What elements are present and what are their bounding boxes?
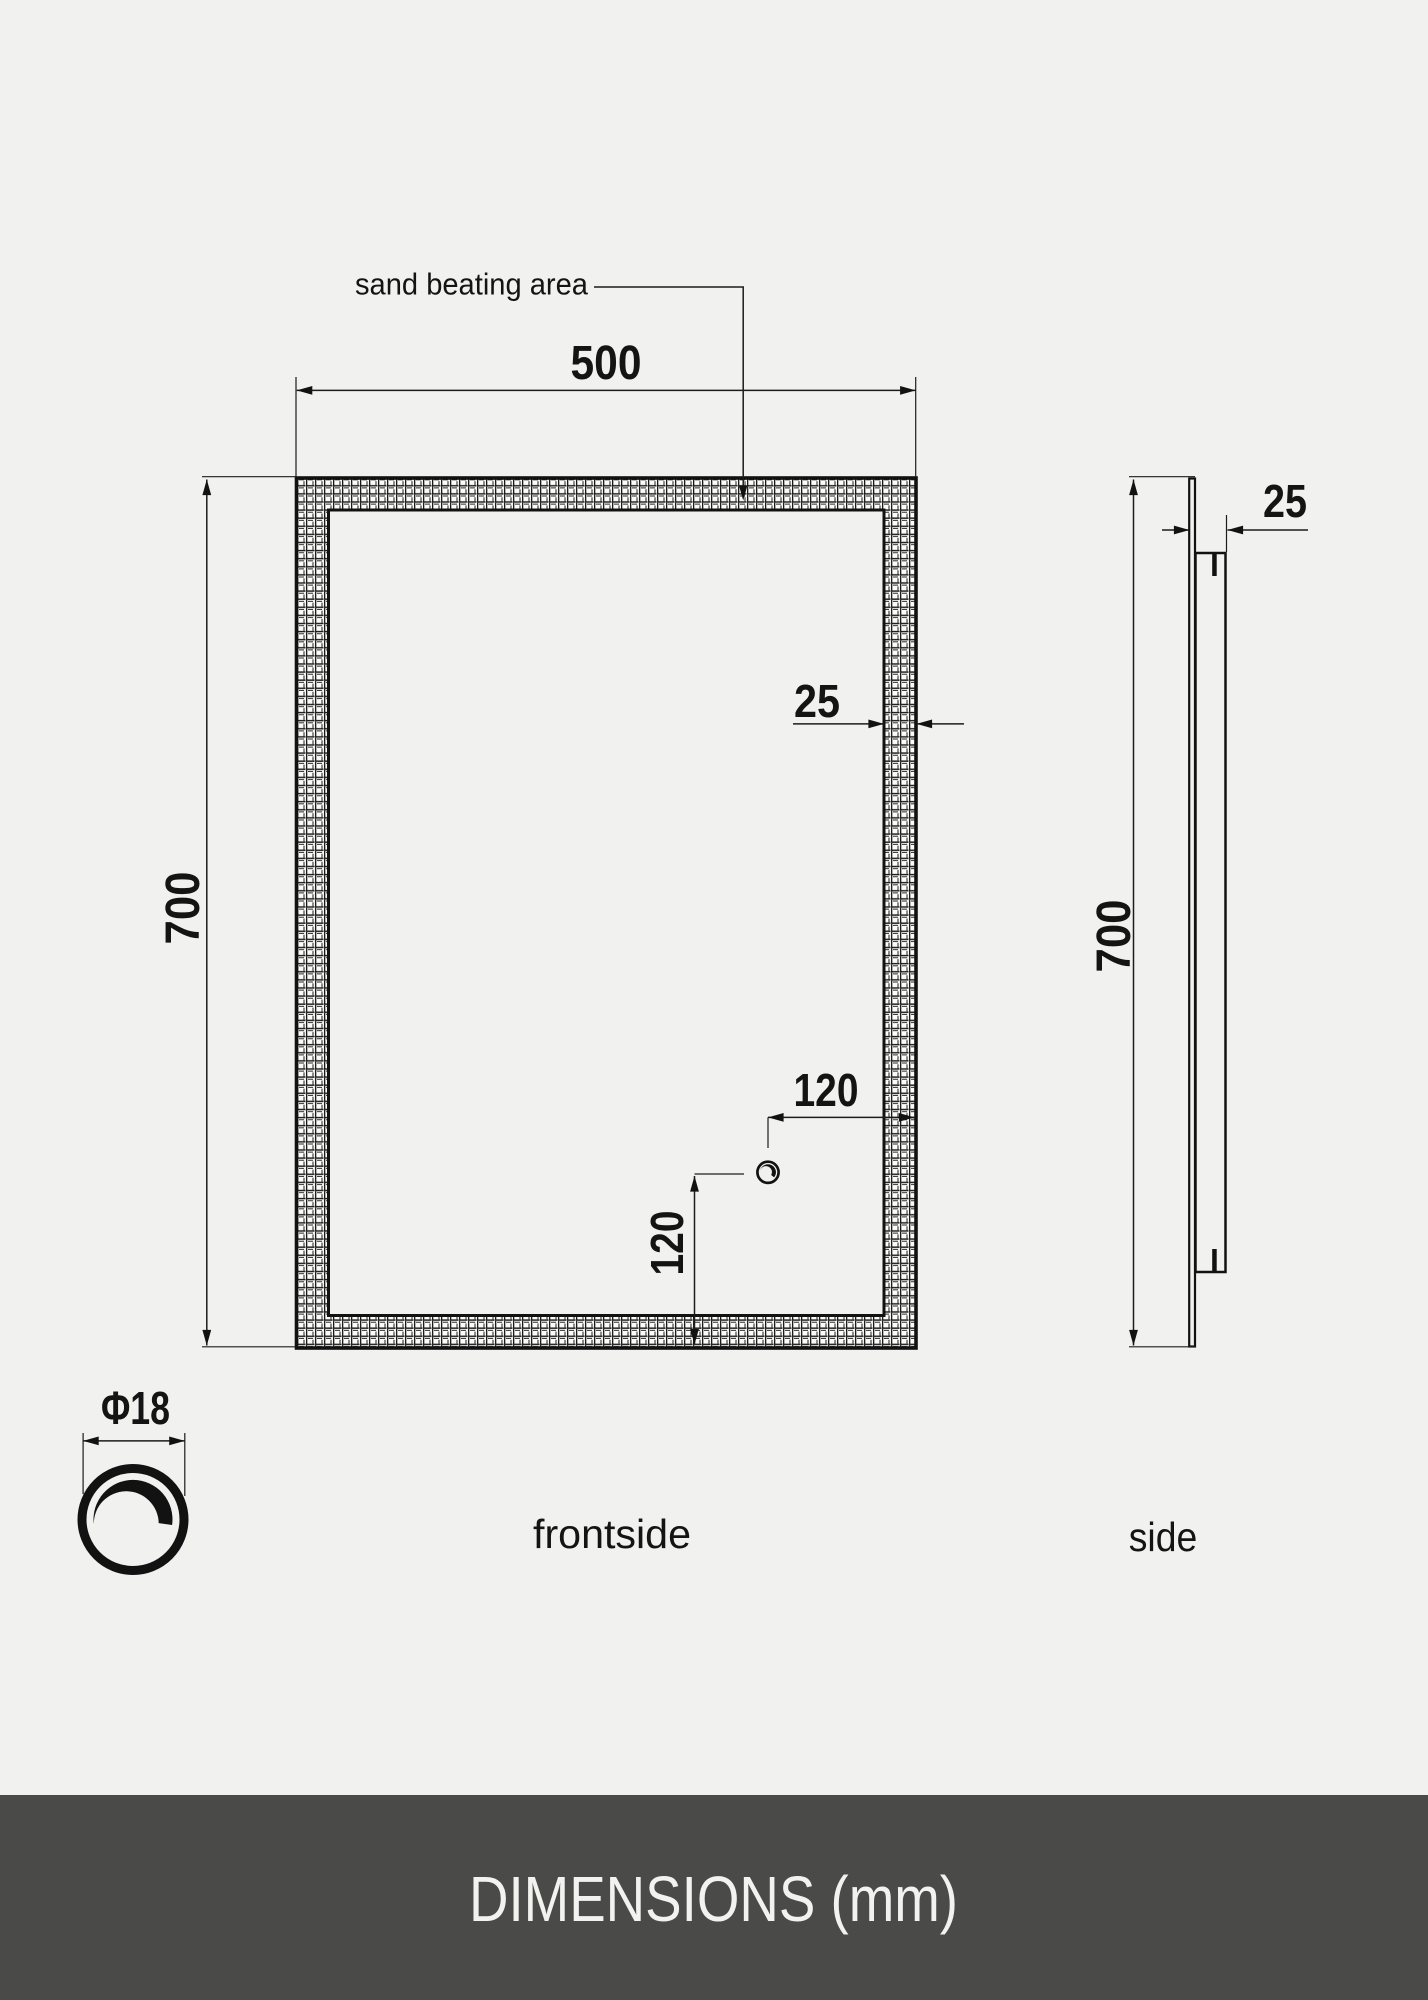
svg-text:500: 500 [571, 337, 642, 390]
svg-text:700: 700 [157, 872, 210, 945]
svg-text:25: 25 [794, 675, 840, 727]
svg-text:frontside: frontside [533, 1511, 691, 1557]
svg-text:120: 120 [794, 1064, 859, 1116]
svg-text:25: 25 [1263, 475, 1307, 527]
svg-text:sand beating area: sand beating area [355, 267, 589, 302]
svg-text:DIMENSIONS (mm): DIMENSIONS (mm) [469, 1863, 958, 1935]
svg-text:side: side [1129, 1514, 1198, 1560]
svg-text:Φ18: Φ18 [101, 1382, 170, 1434]
svg-text:120: 120 [641, 1211, 693, 1276]
